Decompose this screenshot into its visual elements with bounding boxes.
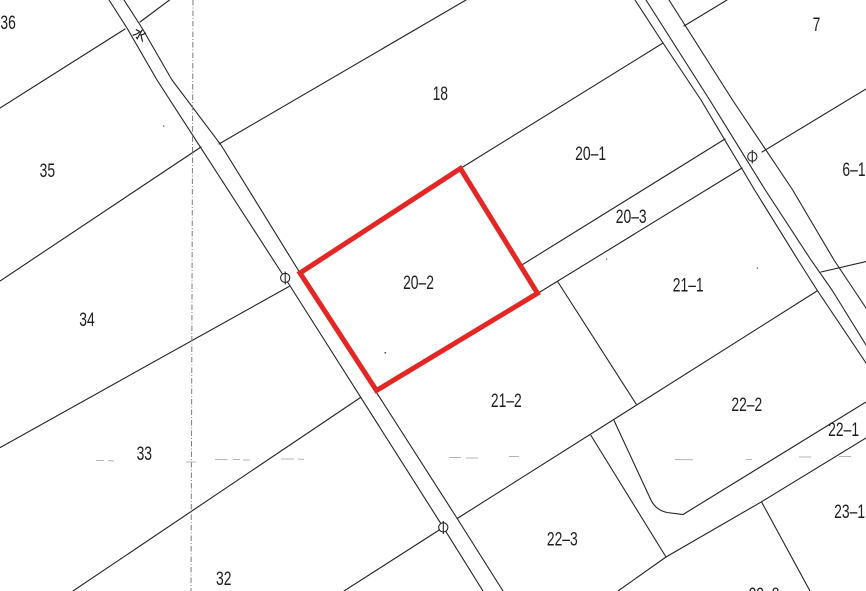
svg-text:23–1: 23–1 bbox=[834, 501, 865, 523]
svg-text:22–3: 22–3 bbox=[547, 528, 578, 550]
svg-text:6–1: 6–1 bbox=[842, 159, 865, 181]
svg-text:35: 35 bbox=[40, 160, 55, 182]
svg-text:36: 36 bbox=[0, 12, 15, 34]
svg-text:22–8: 22–8 bbox=[749, 584, 780, 591]
svg-text:21–2: 21–2 bbox=[491, 390, 522, 412]
svg-text:18: 18 bbox=[433, 83, 448, 105]
svg-text:22–1: 22–1 bbox=[828, 419, 859, 441]
svg-text:34: 34 bbox=[79, 309, 94, 331]
svg-text:20–3: 20–3 bbox=[616, 206, 647, 228]
svg-text:22–2: 22–2 bbox=[731, 394, 762, 416]
svg-text:32: 32 bbox=[216, 568, 231, 590]
svg-text:21–1: 21–1 bbox=[673, 274, 704, 296]
svg-text:20–2: 20–2 bbox=[403, 272, 434, 294]
svg-text:33: 33 bbox=[137, 443, 152, 465]
svg-text:7: 7 bbox=[813, 14, 821, 36]
svg-text:20–1: 20–1 bbox=[575, 143, 606, 165]
